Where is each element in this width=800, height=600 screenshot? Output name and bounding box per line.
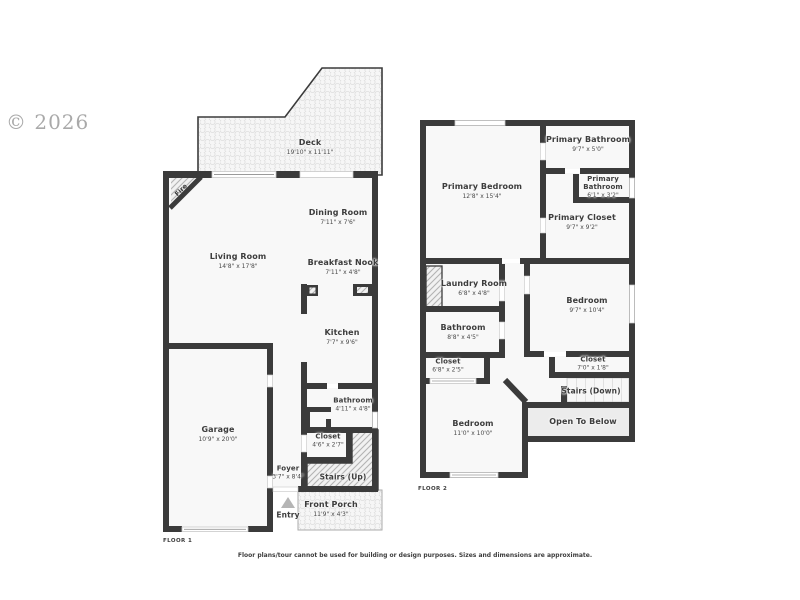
room-label-stairs-down: Stairs (Down) — [561, 387, 620, 396]
room-name: Entry — [276, 511, 299, 520]
room-name: Garage — [201, 425, 234, 435]
room-label-entry: Entry — [276, 511, 299, 520]
room-dims: 7'11" x 7'6" — [320, 219, 355, 226]
room-name: Closet — [580, 356, 605, 364]
room-name: Bathroom — [440, 323, 485, 333]
room-label-primary-bedroom: Primary Bedroom 12'8" x 15'4" — [442, 182, 522, 200]
room-name: Front Porch — [304, 500, 358, 510]
room-dims: 11'0" x 10'0" — [453, 430, 492, 437]
room-label-bedroom-right: Bedroom 9'7" x 10'4" — [566, 296, 607, 314]
entry-arrow-icon — [281, 497, 295, 508]
room-label-primary-closet: Primary Closet 9'7" x 9'2" — [548, 213, 616, 231]
room-label-foyer: Foyer 3'7" x 8'4" — [272, 465, 303, 482]
room-name: Primary Closet — [548, 213, 616, 223]
room-name: Primary Bathroom — [577, 175, 629, 191]
room-dims: 7'0" x 1'8" — [577, 365, 608, 372]
room-label-deck: Deck 19'10" x 11'11" — [287, 138, 334, 156]
room-dims: 6'1" x 3'2" — [587, 192, 618, 199]
room-label-garage: Garage 10'9" x 20'0" — [198, 425, 237, 443]
room-name: Primary Bedroom — [442, 182, 522, 192]
room-label-primary-bathroom: Primary Bathroom 9'7" x 5'0" — [546, 135, 630, 153]
room-dims: 11'9" x 4'3" — [313, 511, 348, 518]
room-dims: 4'11" x 4'8" — [335, 406, 370, 413]
room-dims: 9'7" x 10'4" — [569, 307, 604, 314]
room-name: Foyer — [277, 465, 300, 473]
room-name: Closet — [315, 433, 340, 441]
room-name: Primary Bathroom — [546, 135, 630, 145]
room-name: Stairs (Up) — [320, 473, 367, 482]
room-name: Deck — [299, 138, 322, 148]
room-dims: 9'7" x 5'0" — [572, 146, 603, 153]
room-label-primary-bathroom-2: Primary Bathroom 6'1" x 3'2" — [577, 175, 629, 199]
room-dims: 6'8" x 4'8" — [458, 290, 489, 297]
room-label-bathroom-f1: Bathroom 4'11" x 4'8" — [333, 397, 373, 414]
room-name: Laundry Room — [441, 279, 507, 289]
room-label-front-porch: Front Porch 11'9" x 4'3" — [304, 500, 358, 518]
room-dims: 4'6" x 2'7" — [312, 442, 343, 449]
room-label-dining-room: Dining Room 7'11" x 7'6" — [309, 208, 368, 226]
floor2-tag: FLOOR 2 — [418, 486, 447, 492]
room-name: Open To Below — [549, 417, 617, 427]
room-name: Bedroom — [566, 296, 607, 306]
room-name: Bathroom — [333, 397, 373, 405]
room-name: Breakfast Nook — [308, 258, 379, 268]
floorplan-page: © 2026 Deck 19'10" x 11'11" Dining Room … — [0, 0, 800, 600]
floor1-plan — [163, 68, 382, 532]
copyright-watermark: © 2026 — [6, 110, 89, 134]
room-dims: 9'7" x 9'2" — [566, 224, 597, 231]
room-label-bedroom-lower: Bedroom 11'0" x 10'0" — [452, 419, 493, 437]
room-dims: 7'11" x 4'8" — [325, 269, 360, 276]
room-label-closet-right: Closet 7'0" x 1'8" — [577, 356, 608, 373]
room-name: Dining Room — [309, 208, 368, 218]
room-label-laundry-room: Laundry Room 6'8" x 4'8" — [441, 279, 507, 297]
laundry-utility-area — [426, 266, 442, 310]
room-name: Bedroom — [452, 419, 493, 429]
room-label-living-room: Living Room 14'8" x 17'8" — [210, 252, 267, 270]
room-dims: 14'8" x 17'8" — [218, 263, 257, 270]
room-label-kitchen: Kitchen 7'7" x 9'6" — [324, 328, 359, 346]
room-dims: 7'7" x 9'6" — [326, 339, 357, 346]
room-dims: 10'9" x 20'0" — [198, 436, 237, 443]
room-label-closet-f1: Closet 4'6" x 2'7" — [312, 433, 343, 450]
room-label-stairs-up: Stairs (Up) — [320, 473, 367, 482]
floor1-tag: FLOOR 1 — [163, 538, 192, 544]
room-name: Living Room — [210, 252, 267, 262]
room-dims: 12'8" x 15'4" — [462, 193, 501, 200]
room-dims: 19'10" x 11'11" — [287, 149, 334, 156]
room-dims: 6'8" x 2'5" — [432, 367, 463, 374]
deck-area — [198, 68, 382, 175]
room-label-open-to-below: Open To Below — [549, 417, 617, 427]
disclaimer-text: Floor plans/tour cannot be used for buil… — [215, 552, 615, 559]
room-label-breakfast-nook: Breakfast Nook 7'11" x 4'8" — [308, 258, 379, 276]
room-name: Closet — [435, 358, 460, 366]
room-dims: 3'7" x 8'4" — [272, 474, 303, 481]
room-label-closet-hall: Closet 6'8" x 2'5" — [432, 358, 463, 375]
floorplan-canvas — [0, 0, 800, 600]
room-dims: 8'8" x 4'5" — [447, 334, 478, 341]
room-name: Stairs (Down) — [561, 387, 620, 396]
room-name: Kitchen — [324, 328, 359, 338]
room-label-bathroom-f2: Bathroom 8'8" x 4'5" — [440, 323, 485, 341]
